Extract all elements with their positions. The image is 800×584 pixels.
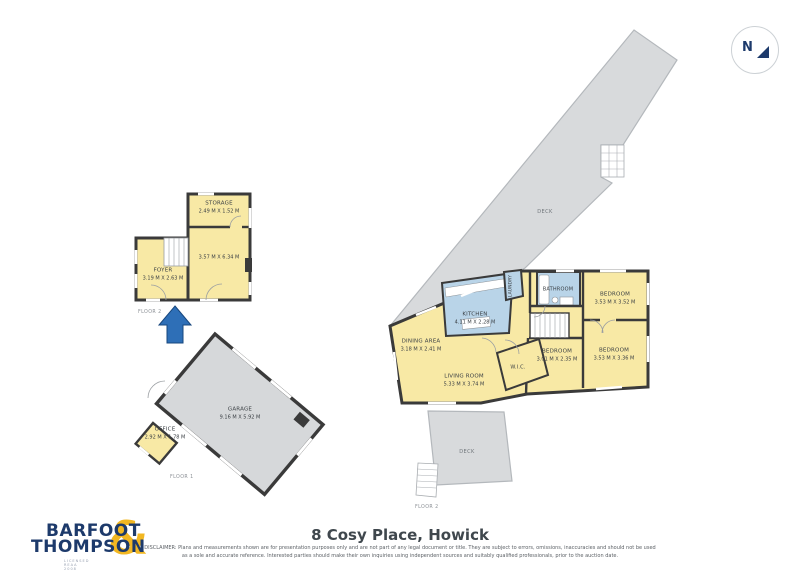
room-label-garage: GARAGE 9.16 M X 5.92 M	[220, 407, 261, 422]
room-label-bedroom-bottom-right: BEDROOM 3.53 M X 3.36 M	[594, 348, 635, 363]
room-label-storage: STORAGE 2.49 M X 1.52 M	[199, 201, 240, 216]
compass-icon: N	[731, 26, 779, 74]
room-label-living: LIVING ROOM 5.33 M X 3.74 M	[444, 374, 485, 389]
room-label-foyer: FOYER 3.19 M X 2.63 M	[143, 268, 184, 283]
floor-label-upper: FLOOR 2	[138, 310, 162, 315]
floorplan-page: STORAGE 2.49 M X 1.52 M 3.57 M X 6.34 M …	[0, 0, 800, 584]
lower-deck-shape	[428, 411, 512, 485]
toilet	[552, 297, 558, 303]
room-label-upper-main: 3.57 M X 6.34 M	[199, 255, 240, 262]
room-label-bedroom-top-right: BEDROOM 3.53 M X 3.52 M	[595, 292, 636, 307]
bathroom-vanity	[560, 297, 573, 305]
deck-staircase	[601, 145, 624, 177]
deck-label-lower: DECK	[459, 449, 474, 455]
floor-label-main: FLOOR 2	[415, 505, 439, 510]
floorplan-canvas	[0, 0, 800, 584]
disclaimer-line1: DISCLAIMER: Plans and measurements shown…	[0, 545, 800, 553]
lower-deck-staircase	[416, 463, 438, 497]
room-label-laundry: LAUNDRY	[509, 275, 514, 297]
room-label-bedroom-middle: BEDROOM 3.01 M X 2.35 M	[537, 349, 578, 364]
laundry-shape	[504, 270, 523, 300]
room-label-kitchen: KITCHEN 4.11 M X 2.28 M	[455, 312, 496, 327]
compass-arrow-icon	[756, 45, 770, 59]
disclaimer: DISCLAIMER: Plans and measurements shown…	[0, 545, 800, 560]
foyer-staircase	[164, 238, 188, 266]
entry-arrow-icon	[159, 306, 191, 343]
deck-label-upper: DECK	[537, 209, 552, 215]
property-title: 8 Cosy Place, Howick	[0, 526, 800, 544]
disclaimer-line2: as a sole and accurate reference. Intere…	[0, 553, 800, 561]
compass-north-label: N	[742, 40, 753, 55]
room-label-office: OFFICE 2.92 M X 1.78 M	[145, 427, 186, 442]
room-label-wic: W.I.C.	[510, 365, 525, 372]
room-label-bathroom: BATHROOM	[543, 287, 574, 294]
logo-tagline: LICENSED REAA 2008	[64, 559, 89, 571]
room-label-dining: DINING AREA 3.18 M X 2.41 M	[401, 339, 442, 354]
floor-label-garage: FLOOR 1	[170, 475, 194, 480]
